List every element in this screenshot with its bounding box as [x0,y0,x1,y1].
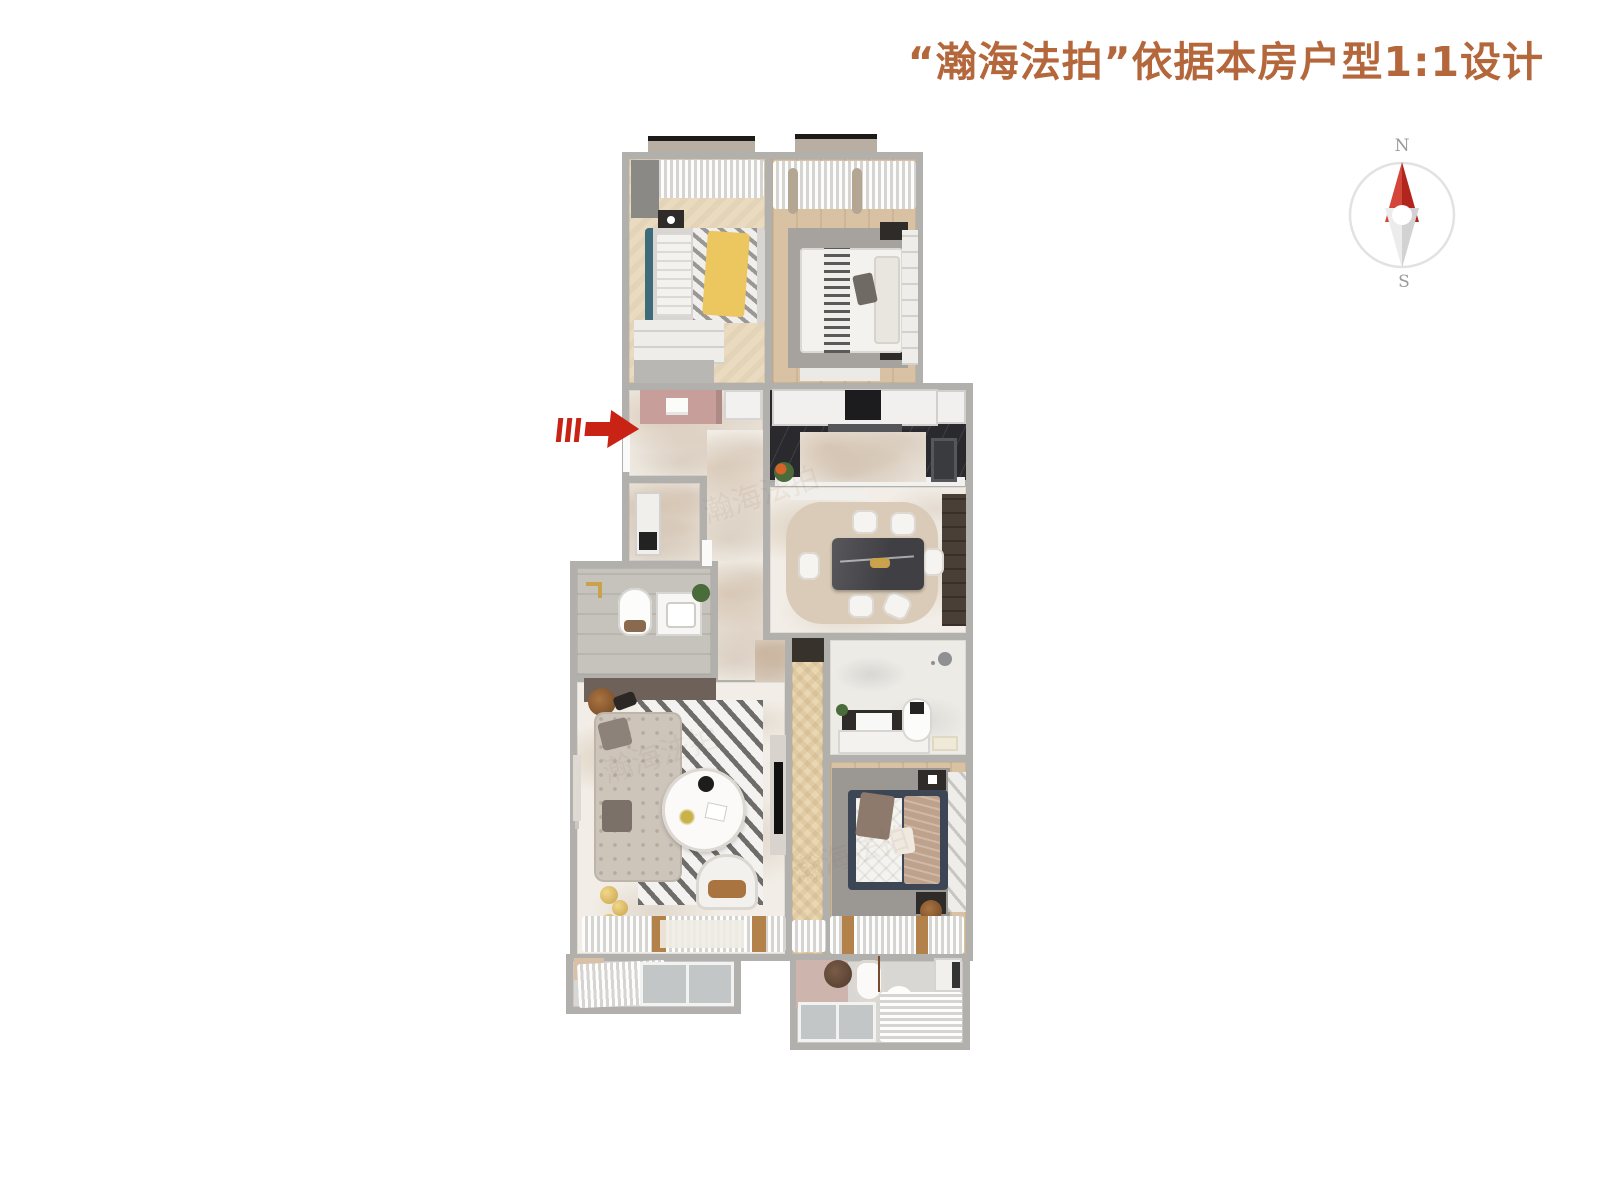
kitchen-plant [774,462,794,482]
balcony-sw-window [640,962,734,1006]
armchair-cushion [708,880,746,898]
tray-paper [705,802,728,822]
wall-art-frames [573,755,581,821]
books-on-cabinet [666,398,688,412]
dining-chair [848,594,874,618]
kitchen-cabinet-right [936,390,966,424]
runner-striped-bed-ne [824,248,850,353]
entry-cabinet-white [724,390,762,420]
pillows-bed-nw [657,234,691,316]
curtain-tieback-right [852,168,862,214]
floorplan-page: “瀚海法拍”依据本房户型1:1设计 N S [0,0,1600,1200]
balcony-se-curtain [880,992,962,1042]
dining-sideboard [790,490,868,500]
compass-icon [1340,128,1464,302]
closet-floor-bedroom-nw [634,360,714,383]
dresser-bedroom-ne [800,368,880,381]
bed-bedroom-ne [800,248,903,353]
wardrobe-bedroom-south [948,772,966,912]
storage-appliance [639,532,657,550]
dining-chair [798,552,820,580]
pillows-bed-ne [874,256,900,344]
hall-doormat-dark [792,638,824,662]
shower-head-bath2 [938,652,952,666]
shower-rail-gold [598,584,602,598]
toilet-tank-black [910,702,924,714]
dining-chair [852,510,878,534]
balcony-se-frame [952,962,960,988]
pillow-white-bed-s [890,827,915,856]
sofa-pillow-bottom [602,800,632,832]
sprig-gold [676,808,698,826]
cooktop [845,390,881,420]
curtain-accent-gold-right [752,916,766,952]
closet-bedroom-nw [634,320,724,364]
curtain-tieback-left [788,168,798,214]
shoe-cabinet-pink [640,390,722,424]
table-centerpiece [870,558,890,568]
page-title: “瀚海法拍”依据本房户型1:1设计 [908,28,1544,88]
sofa-pillow-top [597,717,633,751]
towel-bath2 [932,736,958,751]
throw-brown-bed-s [855,792,895,840]
balcony-se-window [798,1002,876,1042]
balcony-se-plant-stem [878,956,880,992]
balcony-se-table [824,960,852,988]
corridor-floor-to-hall [755,640,785,682]
plant-main-bath [692,584,710,602]
plant-bath2 [836,704,848,716]
throw-yellow-bed-nw [702,231,750,318]
entrance-arrow-icon [552,402,644,456]
curtain-accent-gold-s2 [916,916,928,954]
dining-chair [890,512,916,536]
toilet-lid-accent [624,620,646,632]
floral-mat-living [660,920,744,948]
corridor-floor-upper [707,430,763,561]
tv-screen [774,762,783,834]
bowl-black [698,776,714,792]
dining-chair [922,548,944,576]
coffee-table-living [662,768,746,852]
sink-main-bath [666,602,696,628]
dining-cabinet-dark [942,494,966,626]
bed-bedroom-south [848,790,948,890]
wardrobe-bedroom-ne [902,230,918,365]
curtain-hall-south [792,920,826,952]
door-main-bath [702,540,712,566]
bed-bedroom-nw [645,228,765,323]
drape-dark-bedroom-nw [631,160,659,218]
armchair-living [696,854,758,910]
curtain-accent-gold-s1 [842,916,854,954]
toilet-main-bath [618,588,652,636]
kitchen-marble-mat [800,432,926,482]
dining-table [832,538,924,590]
toilet-bath2 [902,698,932,742]
nightstand-s-top [918,770,946,790]
kitchen-sink [931,438,957,482]
